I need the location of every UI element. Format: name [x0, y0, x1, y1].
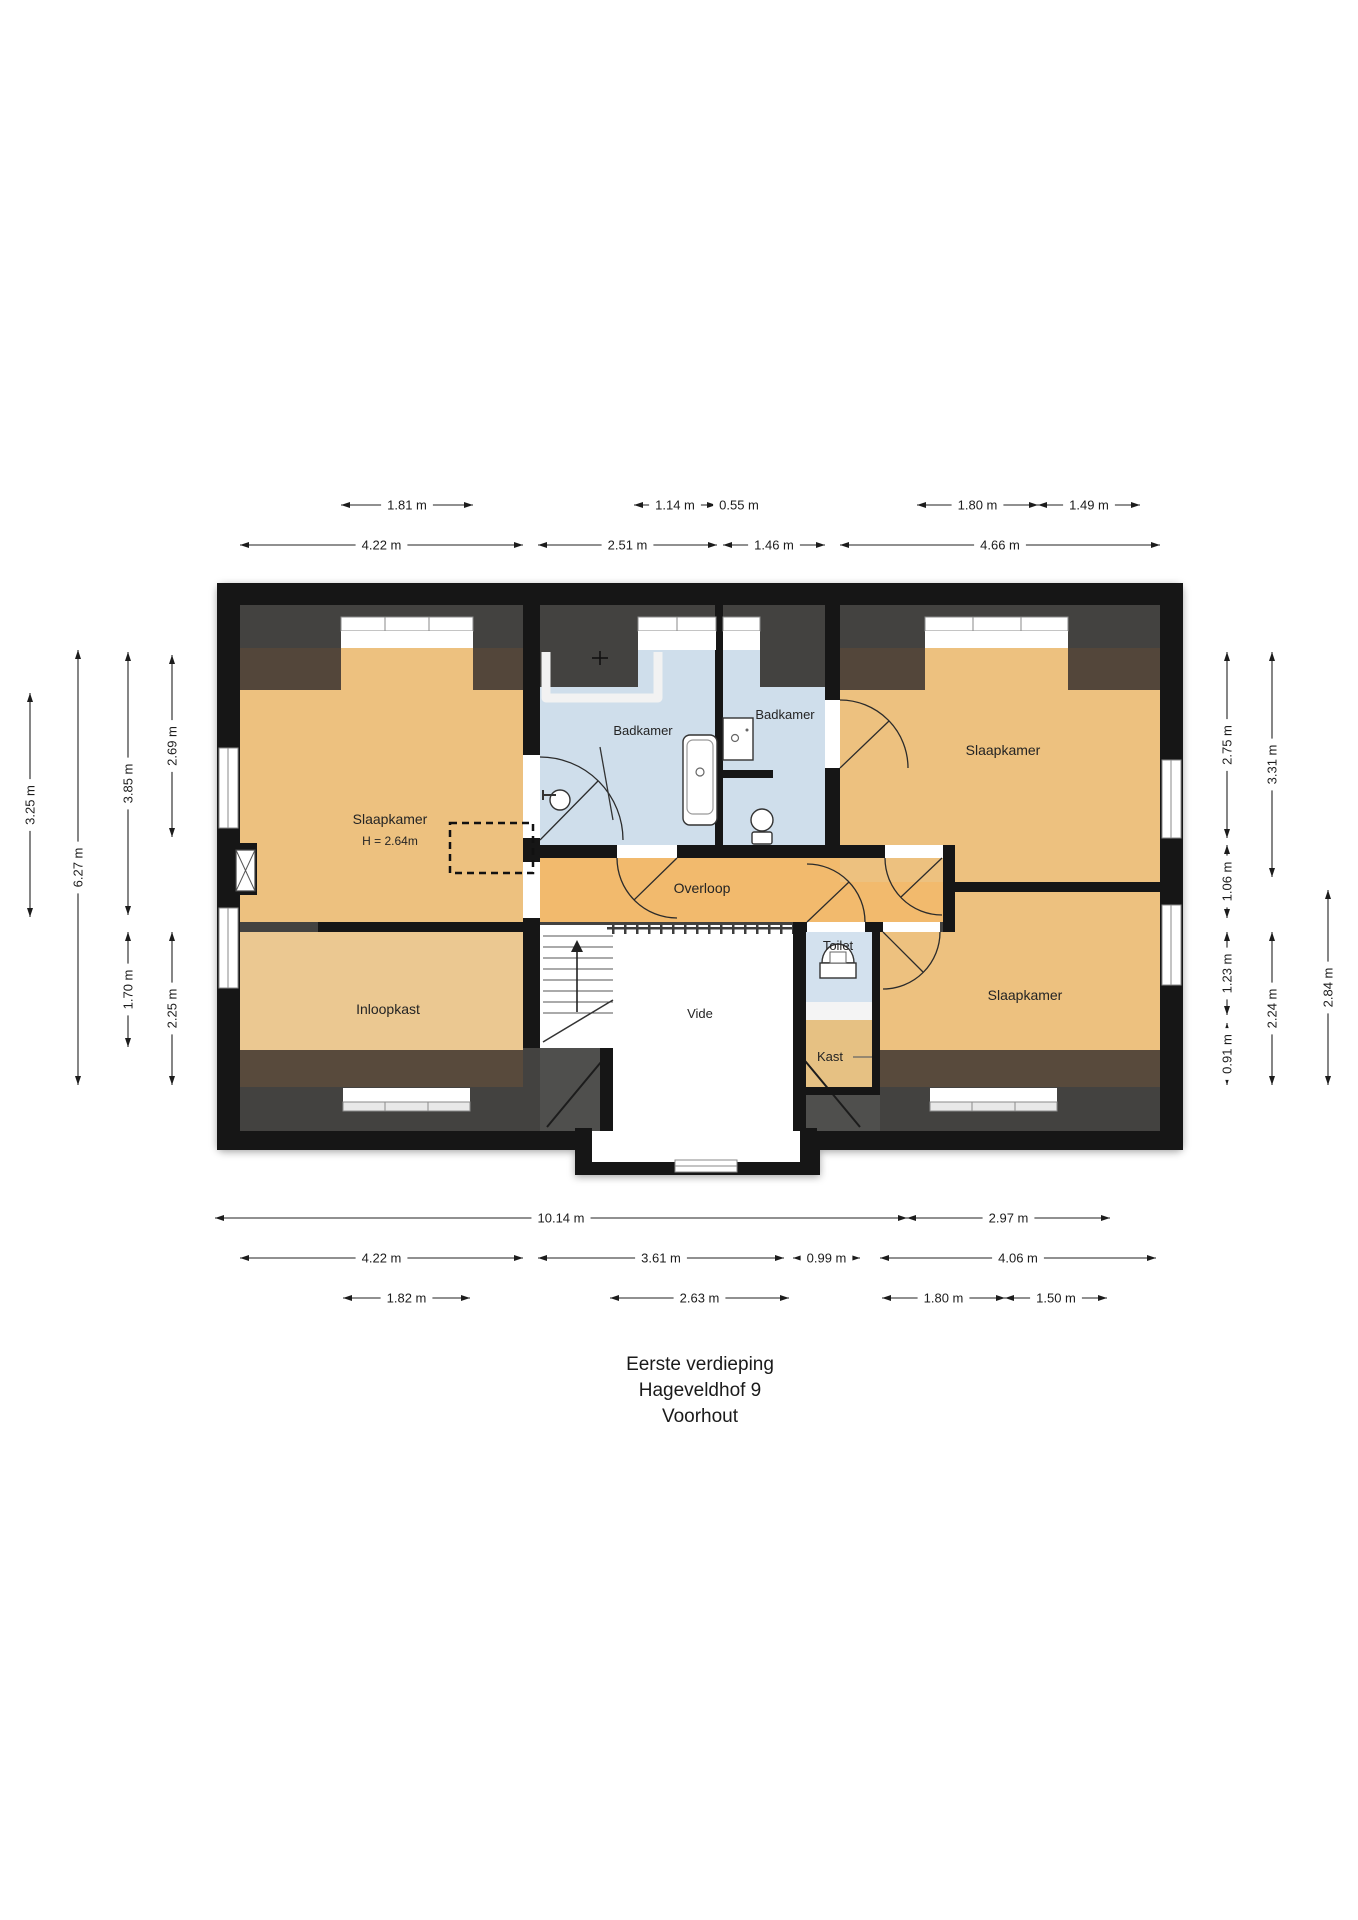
- dimension: 1.23 m: [1219, 932, 1235, 1015]
- dimension-label: 1.80 m: [958, 498, 998, 513]
- vide-railing: [607, 925, 793, 934]
- dimension: 0.55 m: [713, 497, 765, 513]
- window-left-2: [219, 908, 238, 988]
- dimension: 2.51 m: [538, 537, 717, 553]
- title-block: Eerste verdieping Hageveldhof 9 Voorhout: [550, 1352, 850, 1430]
- room-label-inloopkast: Inloopkast: [356, 1001, 420, 1017]
- title-address: Hageveldhof 9: [550, 1378, 850, 1404]
- room-label-vide: Vide: [687, 1006, 713, 1021]
- room-label-toilet: Toilet: [823, 938, 854, 953]
- dimension-label: 1.23 m: [1220, 954, 1235, 994]
- dimension-label: 1.49 m: [1069, 498, 1109, 513]
- dimension: 0.91 m: [1219, 1023, 1235, 1085]
- dimension-label: 2.84 m: [1321, 968, 1336, 1008]
- room-label-kast: Kast: [817, 1049, 843, 1064]
- dimension-label: 2.69 m: [165, 726, 180, 766]
- dimension-label: 2.25 m: [165, 989, 180, 1029]
- door-gap-overloop-toilet: [807, 922, 865, 932]
- dimension-label: 1.70 m: [121, 970, 136, 1010]
- room-label-overloop: Overloop: [674, 880, 731, 896]
- dimension-label: 4.22 m: [362, 538, 402, 553]
- toilet-shelf: [803, 1002, 872, 1020]
- dimension: 3.61 m: [538, 1250, 784, 1266]
- window-right-2: [1162, 905, 1181, 985]
- dimension: 4.66 m: [840, 537, 1160, 553]
- dimension: 2.63 m: [610, 1290, 789, 1306]
- dimension-label: 2.24 m: [1265, 989, 1280, 1029]
- door-gap-overloop-slaapkamer-top: [885, 845, 943, 858]
- window-right-1: [1162, 760, 1181, 838]
- dimension: 4.22 m: [240, 1250, 523, 1266]
- door-gap-slaapkamer-badkamer1: [523, 755, 540, 838]
- room-label-slaapkamer-left-height: H = 2.64m: [362, 834, 418, 848]
- dimension: 2.24 m: [1264, 932, 1280, 1085]
- dimension: 2.75 m: [1219, 652, 1235, 838]
- dimension: 1.46 m: [723, 537, 825, 553]
- dormer-floor-right: [925, 648, 1068, 690]
- window-bottom-slaapkamer: [930, 1088, 1057, 1111]
- room-label-slaapkamer-bottom-right: Slaapkamer: [988, 987, 1063, 1003]
- dimension: 3.25 m: [22, 693, 38, 917]
- dimension-label: 3.25 m: [23, 785, 38, 825]
- room-label-badkamer-2: Badkamer: [755, 707, 815, 722]
- sink-cabinet-icon: [723, 718, 753, 760]
- dimension-label: 1.14 m: [655, 498, 695, 513]
- room-inloopkast: [240, 932, 523, 1050]
- title-floor: Eerste verdieping: [550, 1352, 850, 1378]
- dimension: 1.81 m: [341, 497, 473, 513]
- dimension-label: 2.51 m: [608, 538, 648, 553]
- dimension-label: 0.99 m: [807, 1251, 847, 1266]
- eaves-over-badkamer-2: [760, 650, 830, 687]
- dormer-floor-left: [341, 648, 473, 690]
- dimension-label: 3.61 m: [641, 1251, 681, 1266]
- room-slaapkamer-left: [240, 690, 523, 922]
- dimension: 1.80 m: [882, 1290, 1005, 1306]
- dimension: 3.85 m: [120, 652, 136, 915]
- dimension: 2.97 m: [907, 1210, 1110, 1226]
- dimension-label: 1.80 m: [924, 1291, 964, 1306]
- dimension-label: 1.81 m: [387, 498, 427, 513]
- room-slaapkamer-bottom-right-strip: [945, 892, 1160, 932]
- dimension: 3.31 m: [1264, 652, 1280, 877]
- dimension-label: 2.75 m: [1220, 725, 1235, 765]
- dimension: 4.06 m: [880, 1250, 1156, 1266]
- floor-plan: SlaapkamerH = 2.64mBadkamerBadkamerSlaap…: [0, 0, 1358, 1920]
- toilet-fixture-icon: [751, 809, 773, 844]
- door-gap-slaapkamer-overloop: [523, 862, 540, 918]
- title-city: Voorhout: [550, 1404, 850, 1430]
- brown-band-bottom-right: [880, 1050, 1160, 1087]
- dimension-label: 1.82 m: [387, 1291, 427, 1306]
- room-label-slaapkamer-top-right: Slaapkamer: [966, 742, 1041, 758]
- bay-floor: [592, 1128, 800, 1162]
- dimension: 2.69 m: [164, 655, 180, 837]
- window-left-1: [219, 748, 238, 828]
- dimension: 1.80 m: [917, 497, 1038, 513]
- bathtub-icon: [683, 735, 717, 825]
- door-gap-overloop-badkamer1: [617, 845, 677, 858]
- brown-band-bottom-left: [240, 1050, 523, 1087]
- dimension: 1.50 m: [1005, 1290, 1107, 1306]
- dimension: 2.25 m: [164, 932, 180, 1085]
- dimension: 0.99 m: [793, 1250, 860, 1266]
- dimension-label: 2.63 m: [680, 1291, 720, 1306]
- dimension-label: 1.46 m: [754, 538, 794, 553]
- door-gap-overloop-slaapkamer-bottom: [883, 922, 940, 932]
- door-gap-badkamer2-slaapkamer: [825, 700, 840, 768]
- dimension-label: 2.97 m: [989, 1211, 1029, 1226]
- dormer-window-top-left: [341, 617, 473, 648]
- dimension-label: 4.06 m: [998, 1251, 1038, 1266]
- window-bottom-inloopkast: [343, 1088, 470, 1111]
- dimension-label: 6.27 m: [71, 848, 86, 888]
- dimension-label: 3.85 m: [121, 764, 136, 804]
- dormer-window-top-right: [925, 617, 1068, 648]
- dimension: 1.49 m: [1038, 497, 1140, 513]
- eaves-over-badkamer-1: [538, 650, 638, 687]
- dimension: 2.84 m: [1320, 890, 1336, 1085]
- dimension-label: 0.55 m: [719, 498, 759, 513]
- room-label-slaapkamer-left: Slaapkamer: [353, 811, 428, 827]
- dimension-label: 10.14 m: [538, 1211, 585, 1226]
- vide-floor: [613, 925, 793, 1131]
- dimension-label: 3.31 m: [1265, 745, 1280, 785]
- dimension-label: 4.22 m: [362, 1251, 402, 1266]
- dimension: 6.27 m: [70, 650, 86, 1085]
- dimension-label: 1.06 m: [1220, 862, 1235, 902]
- dimension: 1.06 m: [1219, 845, 1235, 918]
- room-floors: [240, 648, 1160, 1162]
- dimension: 4.22 m: [240, 537, 523, 553]
- dimension: 1.82 m: [343, 1290, 470, 1306]
- dimension: 10.14 m: [215, 1210, 907, 1226]
- room-label-badkamer-1: Badkamer: [613, 723, 673, 738]
- dimension-label: 0.91 m: [1220, 1034, 1235, 1074]
- dimension-label: 1.50 m: [1036, 1291, 1076, 1306]
- window-bay: [675, 1160, 737, 1172]
- dimension: 1.14 m: [634, 497, 716, 513]
- dormer-window-badkamer-1: [638, 617, 716, 650]
- floorplan-page: SlaapkamerH = 2.64mBadkamerBadkamerSlaap…: [0, 0, 1358, 1920]
- dormer-window-badkamer-2: [723, 617, 760, 650]
- dimension: 1.70 m: [120, 932, 136, 1047]
- dimension-label: 4.66 m: [980, 538, 1020, 553]
